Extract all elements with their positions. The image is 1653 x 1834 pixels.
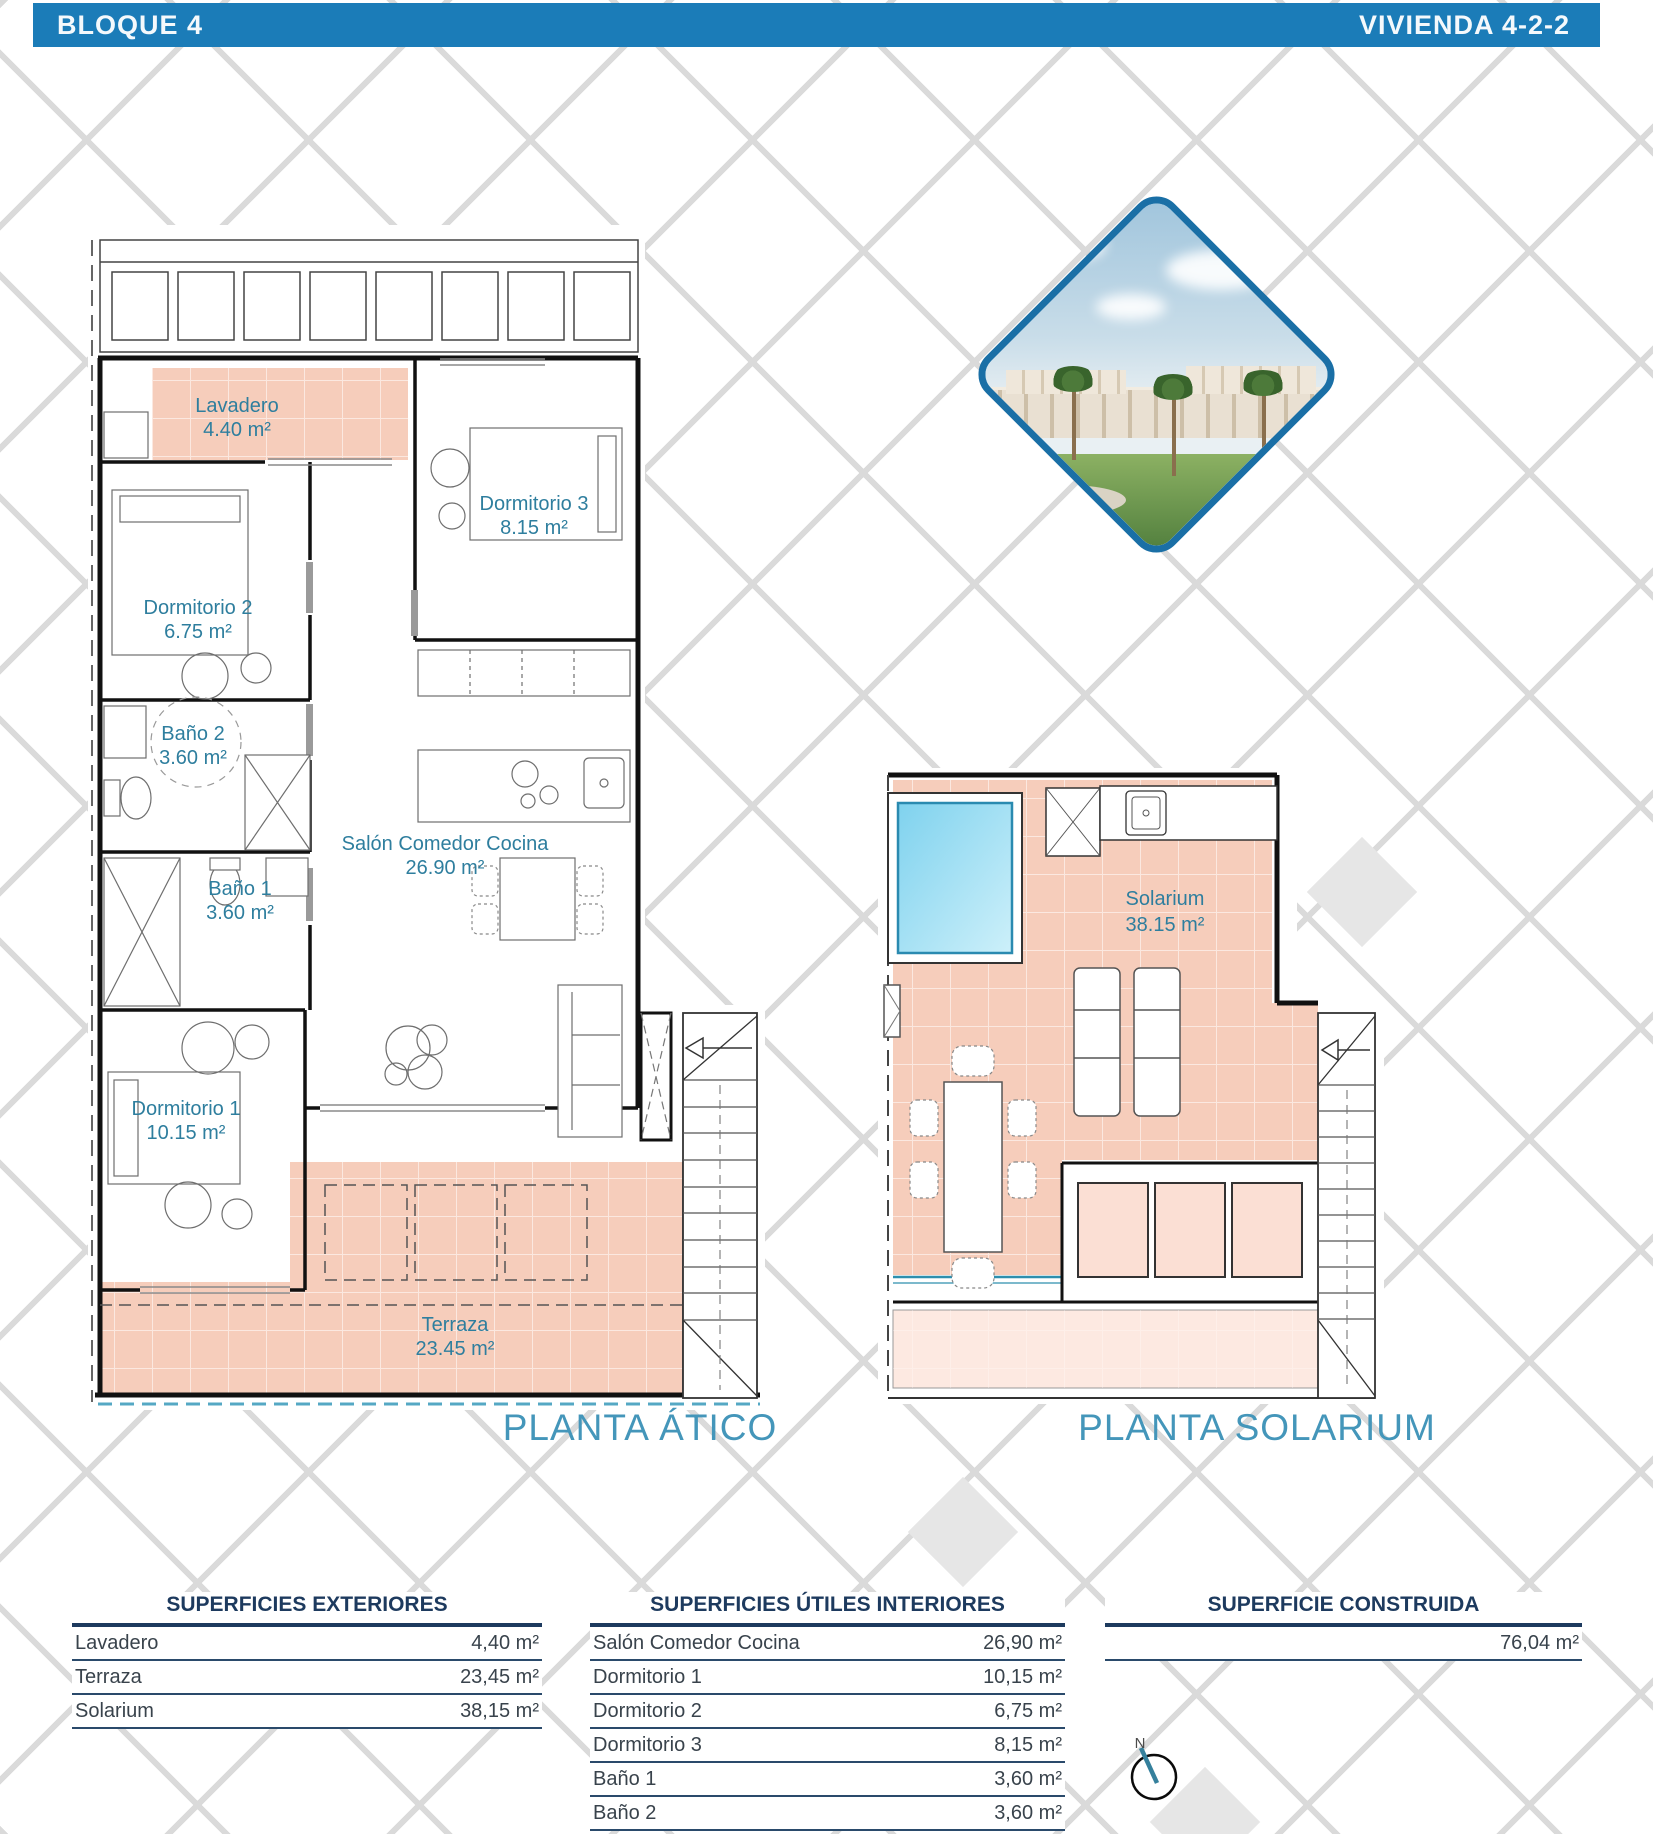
room-label-bano1: Baño 1 xyxy=(208,878,271,900)
table-row: Dormitorio 1 10,15 m² xyxy=(590,1661,1065,1695)
plan-title-solarium: PLANTA SOLARIUM xyxy=(1078,1407,1436,1448)
row-value: 10,15 m² xyxy=(983,1666,1062,1689)
row-label: Dormitorio 1 xyxy=(593,1666,702,1689)
row-label: Baño 1 xyxy=(593,1768,656,1791)
row-value: 4,40 m² xyxy=(471,1632,539,1655)
table-row: Dormitorio 3 8,15 m² xyxy=(590,1729,1065,1763)
floorplans-drawing: Lavadero 4.40 m² Dormitorio 3 8.15 m² Do… xyxy=(0,0,1653,1834)
plan-title-atico: PLANTA ÁTICO xyxy=(503,1407,778,1448)
row-label: Dormitorio 2 xyxy=(593,1700,702,1723)
row-value: 26,90 m² xyxy=(983,1632,1062,1655)
row-label: Dormitorio 3 xyxy=(593,1734,702,1757)
room-area-salon: 26.90 m² xyxy=(406,857,485,879)
table-row: Dormitorio 2 6,75 m² xyxy=(590,1695,1065,1729)
table-superficie-construida: SUPERFICIE CONSTRUIDA 76,04 m² xyxy=(1105,1592,1582,1661)
dwelling-title: VIVIENDA 4-2-2 xyxy=(1359,10,1570,41)
row-label: Salón Comedor Cocina xyxy=(593,1632,800,1655)
title-bar: BLOQUE 4 VIVIENDA 4-2-2 xyxy=(33,3,1600,47)
table-row: Baño 2 3,60 m² xyxy=(590,1797,1065,1831)
table-row: Salón Comedor Cocina 26,90 m² xyxy=(590,1627,1065,1661)
room-area-dormitorio2: 6.75 m² xyxy=(164,621,232,643)
room-label-dormitorio1: Dormitorio 1 xyxy=(132,1098,241,1120)
row-value: 3,60 m² xyxy=(994,1768,1062,1791)
room-label-dormitorio3: Dormitorio 3 xyxy=(480,493,589,515)
room-label-solarium: Solarium xyxy=(1126,888,1205,910)
atico-stairs xyxy=(683,1013,757,1398)
brochure-page: Lavadero 4.40 m² Dormitorio 3 8.15 m² Do… xyxy=(0,0,1653,1834)
row-value: 6,75 m² xyxy=(994,1700,1062,1723)
room-area-dormitorio1: 10.15 m² xyxy=(147,1122,226,1144)
row-label: Lavadero xyxy=(75,1632,158,1655)
row-label: Solarium xyxy=(75,1700,154,1723)
row-value: 76,04 m² xyxy=(1500,1632,1579,1655)
row-value: 8,15 m² xyxy=(994,1734,1062,1757)
room-area-bano1: 3.60 m² xyxy=(206,902,274,924)
room-label-terraza: Terraza xyxy=(422,1314,490,1336)
table-superficies-utiles-interiores: SUPERFICIES ÚTILES INTERIORES Salón Come… xyxy=(590,1592,1065,1831)
row-label: Terraza xyxy=(75,1666,142,1689)
room-area-dormitorio3: 8.15 m² xyxy=(500,517,568,539)
block-title: BLOQUE 4 xyxy=(57,10,203,41)
room-label-dormitorio2: Dormitorio 2 xyxy=(144,597,253,619)
table-row: Lavadero 4,40 m² xyxy=(72,1627,542,1661)
row-value: 23,45 m² xyxy=(460,1666,539,1689)
table-row: Solarium 38,15 m² xyxy=(72,1695,542,1729)
row-value: 3,60 m² xyxy=(994,1802,1062,1825)
room-area-bano2: 3.60 m² xyxy=(159,747,227,769)
table-title: SUPERFICIE CONSTRUIDA xyxy=(1105,1592,1582,1627)
room-area-terraza: 23.45 m² xyxy=(416,1338,495,1360)
row-label: Baño 2 xyxy=(593,1802,656,1825)
table-row: 76,04 m² xyxy=(1105,1627,1582,1661)
compass-north-label: N xyxy=(1135,1735,1146,1752)
table-row: Baño 1 3,60 m² xyxy=(590,1763,1065,1797)
pool xyxy=(898,803,1012,953)
room-label-bano2: Baño 2 xyxy=(161,723,224,745)
table-title: SUPERFICIES ÚTILES INTERIORES xyxy=(590,1592,1065,1627)
room-area-lavadero: 4.40 m² xyxy=(203,419,271,441)
room-label-salon: Salón Comedor Cocina xyxy=(342,833,550,855)
row-value: 38,15 m² xyxy=(460,1700,539,1723)
room-area-solarium: 38.15 m² xyxy=(1126,914,1205,936)
table-row: Terraza 23,45 m² xyxy=(72,1661,542,1695)
table-superficies-exteriores: SUPERFICIES EXTERIORES Lavadero 4,40 m² … xyxy=(72,1592,542,1729)
table-title: SUPERFICIES EXTERIORES xyxy=(72,1592,542,1627)
solarium-stairs xyxy=(1318,1013,1375,1398)
compass: N xyxy=(1132,1735,1176,1799)
room-label-lavadero: Lavadero xyxy=(195,395,278,417)
